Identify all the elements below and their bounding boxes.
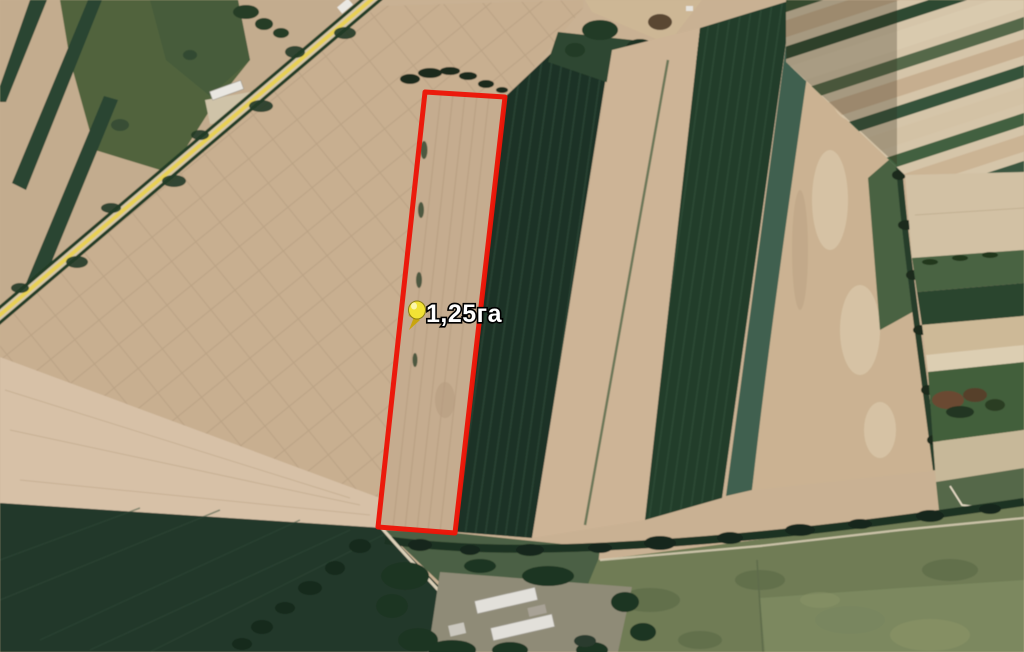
placemark-label: 1,25га xyxy=(426,300,503,328)
satellite-map[interactable]: 1,25га xyxy=(0,0,1024,652)
satellite-imagery xyxy=(0,0,1024,652)
